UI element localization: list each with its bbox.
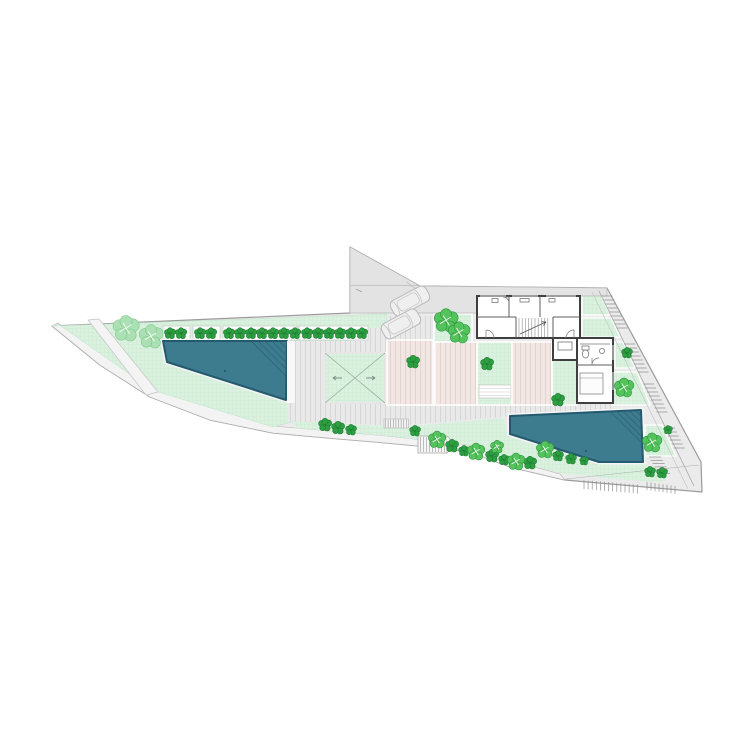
toilet-icon	[582, 350, 588, 358]
sunken-court	[325, 353, 385, 403]
small-hatch-strip	[384, 419, 409, 428]
site-plan-drawing	[0, 0, 750, 750]
pink-terraces	[387, 340, 552, 405]
shrub-icon	[664, 426, 673, 434]
pool-coping-strip	[287, 341, 295, 403]
toilet-icon	[582, 346, 589, 350]
pool-drain	[224, 370, 226, 372]
site-plan-canvas	[0, 0, 750, 750]
shrub-icon	[580, 457, 589, 465]
tree-icon	[113, 316, 139, 341]
sink-icon	[599, 348, 604, 353]
garden-steps	[479, 385, 511, 398]
pool-drain	[585, 450, 587, 452]
bed-icon	[580, 373, 603, 394]
